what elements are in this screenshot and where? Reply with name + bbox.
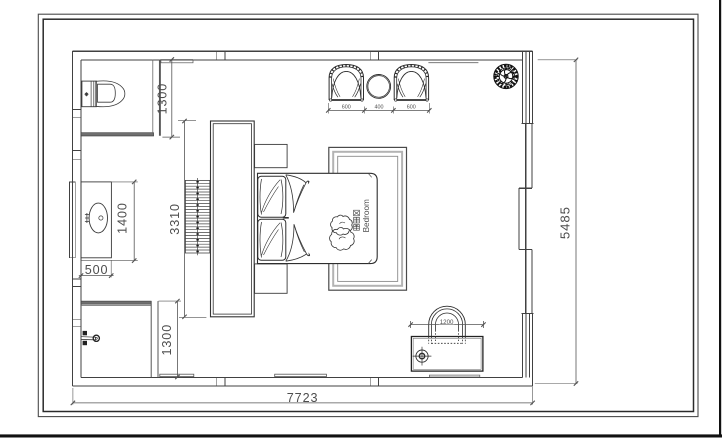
svg-text:600: 600	[342, 105, 351, 111]
svg-text:1200: 1200	[440, 319, 454, 326]
svg-text:400: 400	[375, 105, 384, 111]
svg-text:3310: 3310	[168, 203, 182, 235]
svg-text:5485: 5485	[558, 206, 573, 239]
svg-text:1300: 1300	[155, 83, 169, 115]
svg-text:7723: 7723	[287, 391, 319, 405]
svg-text:1300: 1300	[160, 324, 174, 356]
svg-text:Bedroom: Bedroom	[362, 199, 371, 232]
svg-text:1400: 1400	[116, 202, 130, 234]
svg-text:500: 500	[85, 263, 109, 277]
svg-text:600: 600	[407, 105, 416, 111]
